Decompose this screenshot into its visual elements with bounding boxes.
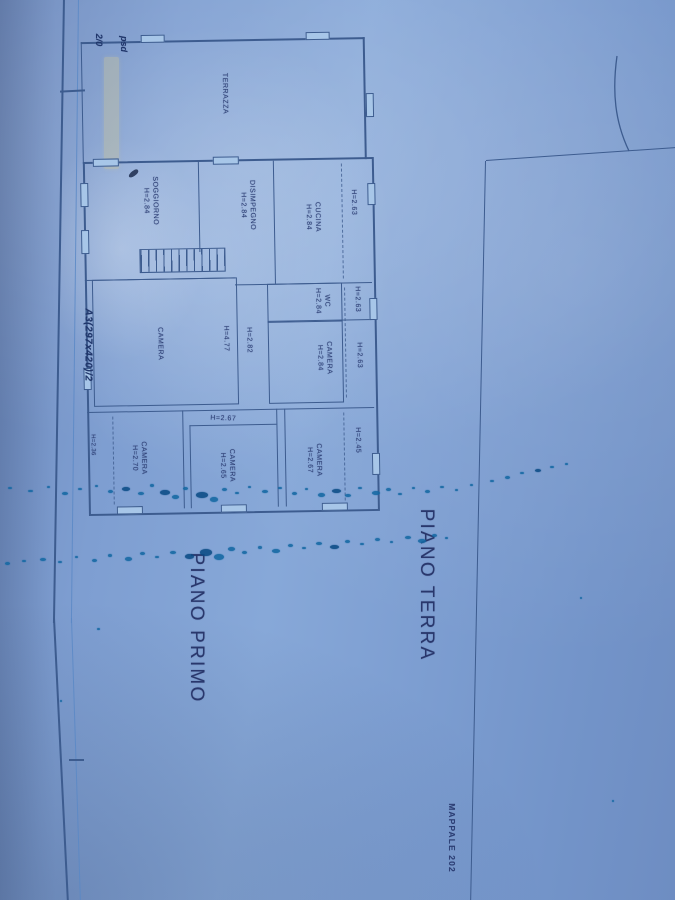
measurement: H=2.82 <box>244 327 254 353</box>
ink-dot <box>5 562 10 565</box>
window-symbol <box>117 506 143 514</box>
ink-dot <box>390 541 393 543</box>
label-wc: WC H=2.84 <box>313 288 332 314</box>
window-symbol <box>369 298 377 320</box>
measurement: H=2.45 <box>353 427 363 453</box>
label-camera-grande: CAMERA <box>155 327 165 360</box>
staircase <box>139 248 225 273</box>
measurement: H=2.63 <box>349 189 359 215</box>
ink-dot <box>183 487 188 490</box>
measurement: H=2.63 <box>352 286 362 312</box>
ink-dot <box>125 557 132 561</box>
ink-dot <box>140 552 145 555</box>
label-h263-cucina: H=2.63 <box>349 189 359 215</box>
label-cucina: CUCINA H=2.84 <box>303 202 322 232</box>
ink-dot <box>214 554 224 560</box>
window-symbol <box>93 158 119 166</box>
window-symbol <box>306 32 330 40</box>
parcel-boundary-top <box>486 147 675 162</box>
ink-dot <box>170 551 176 554</box>
ink-dot <box>62 492 68 495</box>
room-name: DISIMPEGNO <box>247 180 257 230</box>
ink-dot <box>97 628 100 630</box>
parcel-boundary-left <box>470 161 486 900</box>
ink-dot <box>360 543 364 545</box>
handwritten-note: psd <box>119 36 129 52</box>
ink-dot <box>292 492 297 495</box>
handwritten-sheet-size-note: A3(297x420)/2 <box>83 308 94 381</box>
ink-dot <box>228 547 235 551</box>
room-name: CAMERA <box>314 443 324 476</box>
ink-dot <box>60 700 62 702</box>
ink-dot <box>398 493 402 495</box>
margin-tick <box>69 759 84 761</box>
ink-dot <box>172 495 179 499</box>
ink-dot <box>58 561 62 563</box>
window-symbol <box>322 502 348 510</box>
ink-dot <box>445 537 448 539</box>
ink-dot <box>405 536 411 539</box>
ink-dot <box>262 490 268 493</box>
ink-dot <box>305 488 308 490</box>
room-name: CUCINA <box>313 202 323 232</box>
ink-dot <box>418 539 426 543</box>
ink-dot <box>455 489 458 491</box>
room-height: H=2.84 <box>315 345 325 371</box>
ink-dot <box>150 484 154 487</box>
ink-dot <box>330 545 339 549</box>
ink-dot <box>412 487 415 489</box>
ink-dot <box>490 480 494 482</box>
room-height: H=2.70 <box>130 445 140 471</box>
ink-dot <box>122 487 130 491</box>
label-h263-camera: H=2.63 <box>354 342 364 368</box>
handwritten-note: 2/0 <box>94 34 104 47</box>
label-h267-portico: H=2.67 <box>210 414 236 424</box>
window-symbol <box>221 504 247 512</box>
room-name: CAMERA <box>227 449 237 482</box>
ink-dot <box>155 556 159 558</box>
room-name: CAMERA <box>155 327 165 360</box>
room-height: H=2.84 <box>141 188 151 214</box>
ink-dot <box>505 476 510 479</box>
floor-plan: TERRAZZA SOGGIORNO H=2.84 DISIMPEGNO H=2… <box>81 33 381 520</box>
label-camera-sud-ovest: CAMERA H=2.70 <box>130 441 149 475</box>
ink-dot <box>258 546 262 549</box>
ink-dot <box>75 556 78 558</box>
measurement: H=2.67 <box>210 414 236 424</box>
label-h263-wc: H=2.63 <box>352 286 362 312</box>
label-h236: H=2.36 <box>88 434 96 455</box>
ink-dot <box>28 490 33 492</box>
room-height: H=2.84 <box>238 192 248 218</box>
ink-dot <box>222 488 227 491</box>
ink-dot <box>242 551 247 554</box>
room-height: H=4.77 <box>221 325 231 351</box>
ink-dot <box>196 492 208 498</box>
label-disimpegno: DISIMPEGNO H=2.84 <box>238 180 257 231</box>
measurement: H=2.36 <box>88 434 96 455</box>
ink-dot <box>138 492 144 495</box>
ink-dot <box>200 549 212 556</box>
ink-dot <box>345 540 350 543</box>
window-symbol <box>81 230 89 254</box>
ink-dot <box>386 488 391 491</box>
measurement: H=2.63 <box>354 342 364 368</box>
room-name: CAMERA <box>324 341 334 374</box>
ink-dot <box>550 466 554 468</box>
ink-dot <box>318 493 325 497</box>
window-symbol <box>367 183 375 205</box>
ink-dot <box>345 494 351 497</box>
ink-dot <box>95 485 98 487</box>
ink-dot <box>372 491 380 495</box>
ink-dot <box>425 490 430 493</box>
ink-dot <box>565 463 568 465</box>
floor-title-piano-terra: PIANO TERRA <box>415 509 437 662</box>
label-soggiorno: SOGGIORNO H=2.84 <box>141 176 160 225</box>
room-camera-grande <box>92 277 239 407</box>
ink-dot <box>302 547 306 549</box>
ink-dot <box>612 800 614 802</box>
parcel-label: MAPPALE 202 <box>447 803 457 873</box>
ink-dot <box>40 558 46 561</box>
room-height: H=2.84 <box>313 288 323 314</box>
ink-dot <box>470 484 473 486</box>
ink-dot <box>332 489 341 493</box>
ink-dot <box>248 486 251 488</box>
ink-dot <box>278 487 282 489</box>
ink-dot <box>8 487 12 489</box>
ink-dot <box>535 469 541 472</box>
ink-dot <box>432 534 437 537</box>
paper-edge-shadow <box>0 0 56 900</box>
label-camera-est: CAMERA H=2.84 <box>315 341 334 375</box>
label-h245: H=2.45 <box>353 427 363 453</box>
blueprint-photo: TERRAZZA SOGGIORNO H=2.84 DISIMPEGNO H=2… <box>0 0 675 900</box>
label-camera-sud-est: CAMERA H=2.67 <box>305 443 324 477</box>
ink-dot <box>316 542 322 545</box>
window-symbol <box>80 183 88 207</box>
room-height: H=2.67 <box>305 447 315 473</box>
floor-title-piano-primo: PIANO PRIMO <box>185 553 207 704</box>
window-symbol <box>213 156 239 164</box>
label-camera-sud-centro: CAMERA H=2.65 <box>218 449 237 483</box>
ink-dot <box>78 488 82 490</box>
ink-dot <box>160 490 170 495</box>
label-terrazza: TERRAZZA <box>220 73 230 115</box>
room-height: H=2.84 <box>303 204 313 230</box>
window-symbol <box>366 93 374 117</box>
ink-dot <box>440 486 444 488</box>
ink-dot <box>235 492 239 494</box>
ink-dot <box>272 549 280 553</box>
room-name: TERRAZZA <box>220 73 230 115</box>
ink-dot <box>375 538 380 541</box>
room-name: CAMERA <box>139 441 149 474</box>
window-symbol <box>141 35 165 43</box>
ink-dot <box>185 554 194 559</box>
ink-dot <box>108 490 113 493</box>
ink-dot <box>358 487 362 489</box>
ink-dot <box>288 544 293 547</box>
room-name: WC <box>322 294 331 307</box>
ink-dot <box>92 559 97 562</box>
ink-dot <box>520 472 524 474</box>
ink-dot <box>22 560 26 562</box>
ink-dot <box>47 486 50 488</box>
window-symbol <box>372 453 380 475</box>
room-height: H=2.65 <box>218 453 228 479</box>
room-name: SOGGIORNO <box>150 176 160 225</box>
ink-dot <box>108 554 112 557</box>
label-h477: H=4.77 <box>221 325 231 351</box>
ink-dot <box>210 497 218 502</box>
ink-dot <box>580 597 582 599</box>
label-h282: H=2.82 <box>244 327 254 353</box>
